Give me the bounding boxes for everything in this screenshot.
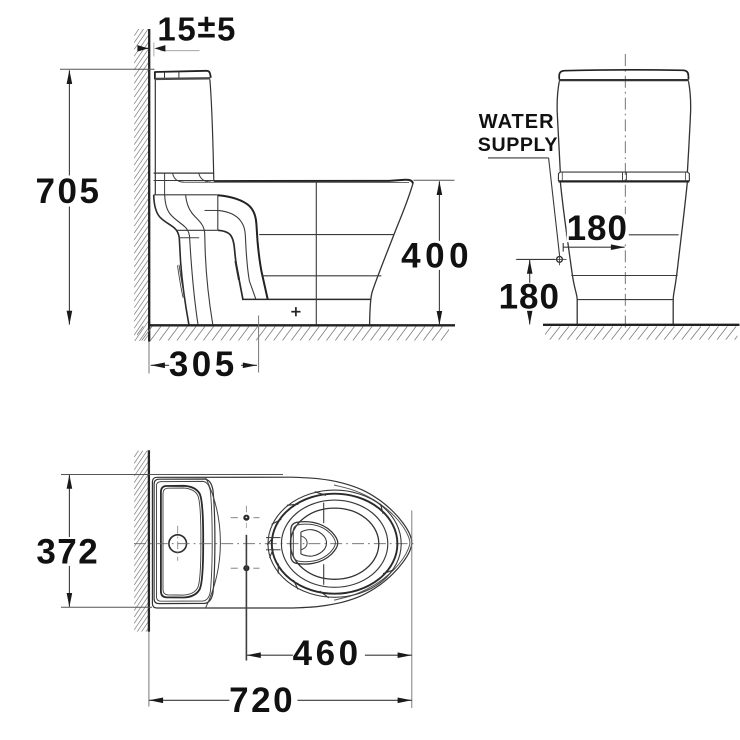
svg-text:WATER: WATER	[479, 111, 555, 133]
svg-text:460: 460	[293, 634, 362, 673]
svg-text:720: 720	[229, 681, 295, 720]
svg-text:180: 180	[567, 209, 628, 248]
svg-text:180: 180	[499, 278, 560, 317]
svg-text:400: 400	[401, 236, 473, 275]
svg-text:705: 705	[36, 172, 102, 211]
svg-text:15±5: 15±5	[157, 7, 237, 47]
svg-text:372: 372	[36, 532, 99, 571]
svg-text:305: 305	[169, 345, 238, 384]
svg-text:SUPPLY: SUPPLY	[478, 134, 558, 156]
